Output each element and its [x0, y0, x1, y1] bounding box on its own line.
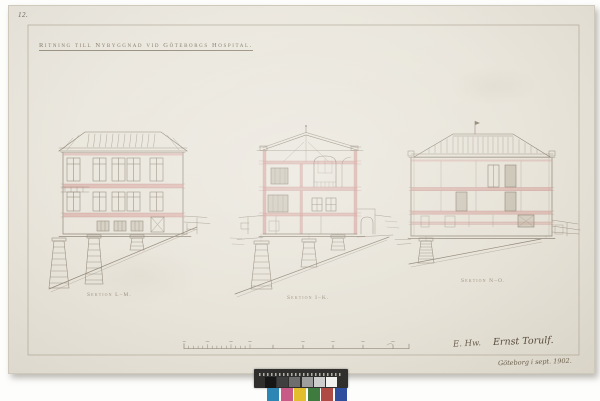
grayscale-patch — [314, 377, 325, 387]
grayscale-patch — [289, 377, 300, 387]
color-patch — [281, 388, 293, 401]
signature-initials: E. Hw. — [453, 338, 481, 349]
color-patch — [321, 388, 333, 401]
color-patch — [294, 388, 306, 401]
section-LM-drawing — [49, 132, 210, 292]
grayscale-patch — [326, 377, 337, 387]
scanned-drawing: 12. Ritning till Nybyggnad vid Göteborgs… — [0, 0, 600, 401]
section-NO-label: Sektion N–O. — [461, 278, 506, 284]
grayscale-patch — [265, 377, 276, 388]
section-IK-drawing — [230, 125, 399, 297]
grayscale-patch — [302, 377, 313, 387]
grayscale-patch — [277, 377, 288, 387]
color-patch — [267, 388, 279, 401]
scale-bar — [183, 342, 409, 349]
color-patch — [335, 388, 347, 401]
drawing-sheet: 12. Ritning till Nybyggnad vid Göteborgs… — [8, 5, 595, 374]
color-calibration-strip — [254, 368, 348, 401]
color-patch — [308, 388, 320, 401]
calibration-strip-microtext — [259, 373, 343, 377]
section-IK-label: Sektion I–K. — [287, 295, 329, 301]
signature-architect: Ernst Torulf. — [493, 335, 554, 348]
section-LM-label: Sektion L–M. — [87, 292, 132, 298]
section-NO-drawing — [395, 121, 580, 267]
ct-color-row — [267, 388, 347, 401]
ct-grayscale-row — [265, 377, 337, 388]
